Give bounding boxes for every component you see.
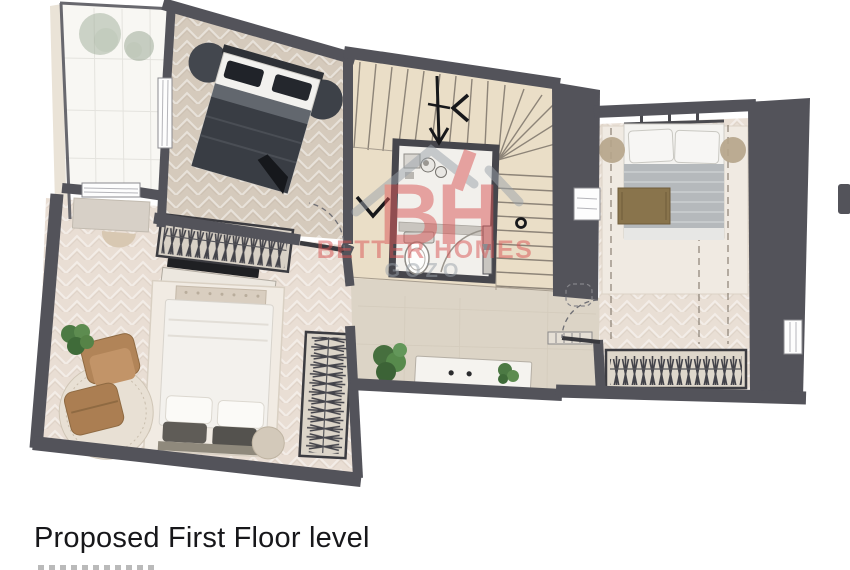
page-title: Proposed First Floor level xyxy=(34,522,370,555)
window-niche xyxy=(574,188,600,220)
dresser xyxy=(72,198,149,232)
pillow xyxy=(217,400,264,428)
floor-plan-drawing: BH BETTER HOMES GOZO xyxy=(0,0,850,570)
window-terrace-bottom xyxy=(82,183,140,197)
brown-throw xyxy=(618,188,670,224)
cropped-text-line xyxy=(38,565,158,570)
bedside-rug-left xyxy=(599,137,625,163)
watermark-region: GOZO xyxy=(385,260,464,282)
bedside-rug-right xyxy=(720,137,746,163)
pillow-dark xyxy=(162,421,207,443)
floor-plan-screenshot: BH BETTER HOMES GOZO Proposed First Floo… xyxy=(0,0,850,570)
stair-arrow-stem xyxy=(437,76,439,140)
wardrobe xyxy=(606,350,746,388)
window-bedroom3-right xyxy=(784,320,802,354)
pillow xyxy=(674,130,719,164)
exterior-unit xyxy=(838,184,850,214)
pillow xyxy=(165,396,212,424)
wardrobe-right xyxy=(300,332,352,458)
pillow xyxy=(628,129,674,163)
window-bedroom1-terrace xyxy=(158,78,172,148)
sheet-fold xyxy=(624,228,724,240)
